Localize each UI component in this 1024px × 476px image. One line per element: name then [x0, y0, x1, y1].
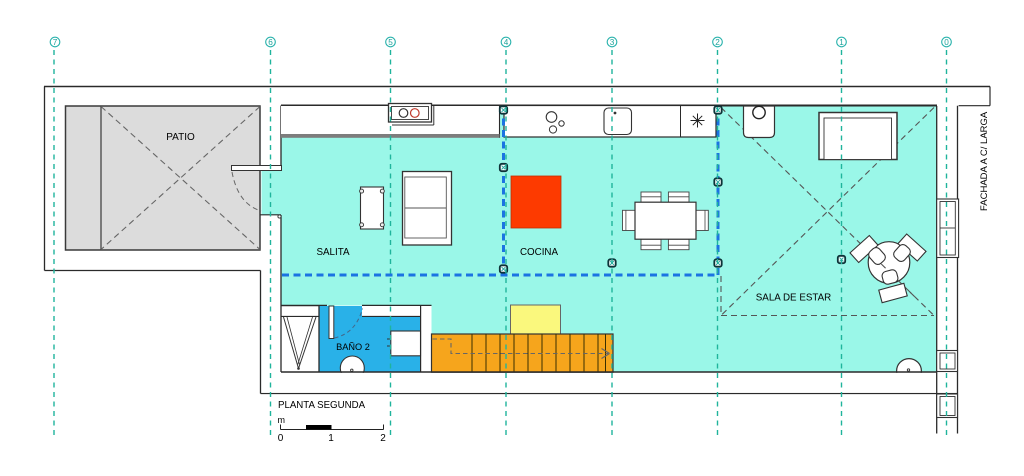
svg-text:4: 4: [504, 38, 509, 47]
svg-text:COCINA: COCINA: [520, 247, 559, 258]
svg-text:3: 3: [610, 38, 615, 47]
svg-text:SALITA: SALITA: [316, 247, 349, 258]
svg-text:0: 0: [944, 38, 949, 47]
svg-text:1: 1: [839, 38, 844, 47]
svg-text:1: 1: [328, 433, 334, 444]
svg-text:0: 0: [278, 433, 284, 444]
svg-text:m: m: [278, 415, 286, 425]
svg-text:5: 5: [388, 38, 393, 47]
svg-text:BAÑO 2: BAÑO 2: [336, 342, 370, 352]
svg-text:PLANTA SEGUNDA: PLANTA SEGUNDA: [278, 400, 366, 411]
svg-text:PATIO: PATIO: [166, 132, 195, 143]
svg-text:2: 2: [715, 38, 720, 47]
svg-text:2: 2: [380, 433, 386, 444]
svg-text:FACHADA A C/ LARGA: FACHADA A C/ LARGA: [979, 111, 990, 211]
svg-text:7: 7: [53, 38, 58, 47]
svg-text:6: 6: [268, 38, 273, 47]
svg-text:SALA DE ESTAR: SALA DE ESTAR: [756, 293, 832, 304]
